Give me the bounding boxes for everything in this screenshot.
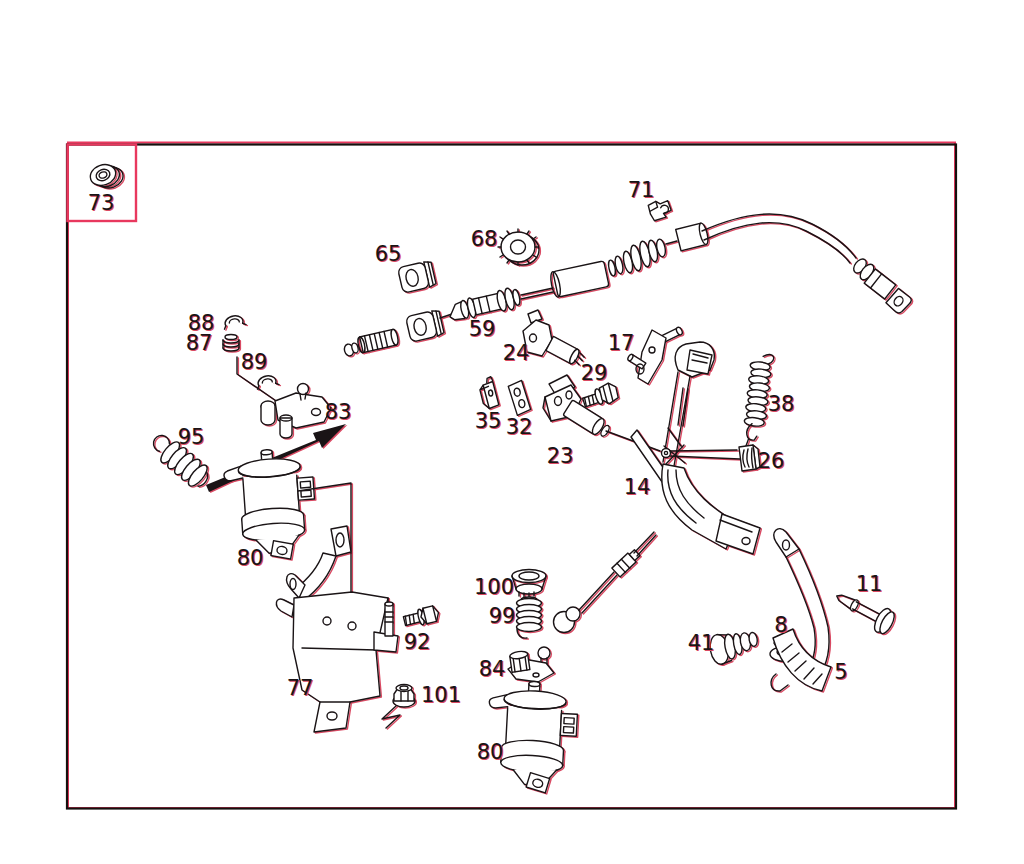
- part-label-38: 38: [768, 392, 795, 416]
- part-label-101: 101: [421, 683, 461, 707]
- part-label-24: 24: [503, 341, 530, 365]
- part-label-73: 73: [88, 191, 115, 215]
- artwork-ink: [87, 159, 912, 794]
- part-label-87: 87: [186, 331, 213, 355]
- part-label-80: 80: [237, 546, 264, 570]
- part-label-17: 17: [608, 331, 635, 355]
- part-label-32: 32: [506, 415, 533, 439]
- part-label-41: 41: [688, 631, 715, 655]
- part-label-5: 5: [834, 660, 847, 684]
- part-label-8: 8: [774, 613, 787, 637]
- part-label-23: 23: [547, 444, 574, 468]
- part-label-11: 11: [856, 572, 883, 596]
- part-label-99: 99: [489, 604, 516, 628]
- part-label-84: 84: [479, 657, 506, 681]
- part-label-71: 71: [628, 178, 655, 202]
- part-label-95: 95: [178, 425, 205, 449]
- part-label-65: 65: [375, 242, 402, 266]
- parts-diagram-page: 7388878983958077921016568592471172935322…: [0, 0, 1024, 864]
- part-label-89: 89: [241, 350, 268, 374]
- part-label-80: 80: [477, 740, 504, 764]
- part-label-35: 35: [475, 409, 502, 433]
- part-label-83: 83: [325, 400, 352, 424]
- part-label-14: 14: [624, 475, 651, 499]
- part-label-26: 26: [758, 449, 785, 473]
- part-label-77: 77: [287, 676, 314, 700]
- part-label-59: 59: [469, 317, 496, 341]
- parts-diagram-canvas: 7388878983958077921016568592471172935322…: [0, 0, 1024, 864]
- part-label-29: 29: [581, 361, 608, 385]
- part-label-68: 68: [471, 227, 498, 251]
- part-label-100: 100: [474, 575, 514, 599]
- part-label-92: 92: [404, 630, 431, 654]
